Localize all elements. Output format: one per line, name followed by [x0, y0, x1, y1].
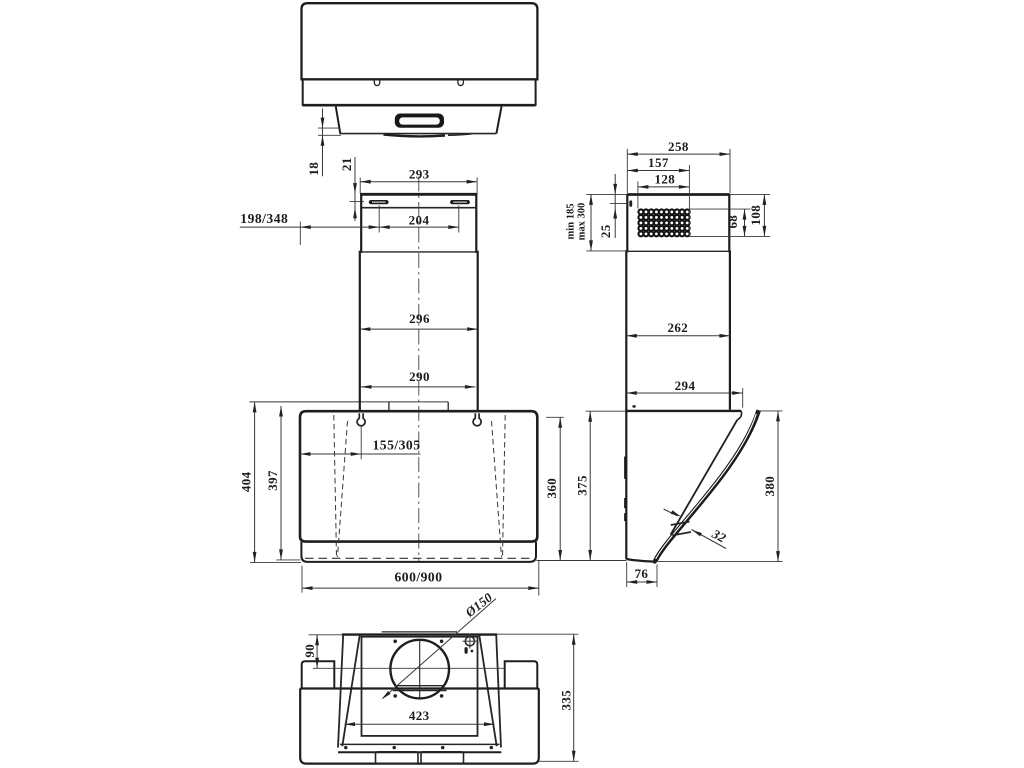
svg-text:296: 296: [409, 311, 430, 326]
svg-text:204: 204: [409, 212, 430, 227]
svg-text:max 300: max 300: [576, 203, 587, 241]
svg-text:155/305: 155/305: [372, 437, 420, 452]
svg-text:335: 335: [559, 690, 574, 711]
svg-text:108: 108: [748, 205, 763, 226]
svg-text:min 185: min 185: [565, 204, 576, 240]
svg-text:76: 76: [635, 566, 649, 581]
svg-text:404: 404: [238, 471, 253, 492]
svg-text:380: 380: [762, 476, 777, 497]
svg-text:423: 423: [409, 708, 430, 723]
svg-text:293: 293: [409, 167, 430, 182]
svg-text:157: 157: [648, 155, 669, 170]
svg-text:375: 375: [574, 475, 589, 496]
svg-text:294: 294: [675, 378, 696, 393]
svg-text:18: 18: [306, 162, 321, 176]
svg-text:25: 25: [598, 224, 613, 238]
svg-text:600/900: 600/900: [394, 570, 442, 585]
svg-text:290: 290: [409, 369, 430, 384]
svg-text:90: 90: [302, 644, 317, 658]
svg-text:198/348: 198/348: [240, 211, 288, 226]
svg-text:21: 21: [339, 157, 354, 171]
svg-text:128: 128: [654, 171, 675, 186]
svg-text:397: 397: [265, 470, 280, 491]
svg-text:262: 262: [667, 320, 688, 335]
svg-text:258: 258: [668, 139, 689, 154]
svg-text:360: 360: [544, 478, 559, 499]
svg-text:68: 68: [725, 215, 740, 229]
